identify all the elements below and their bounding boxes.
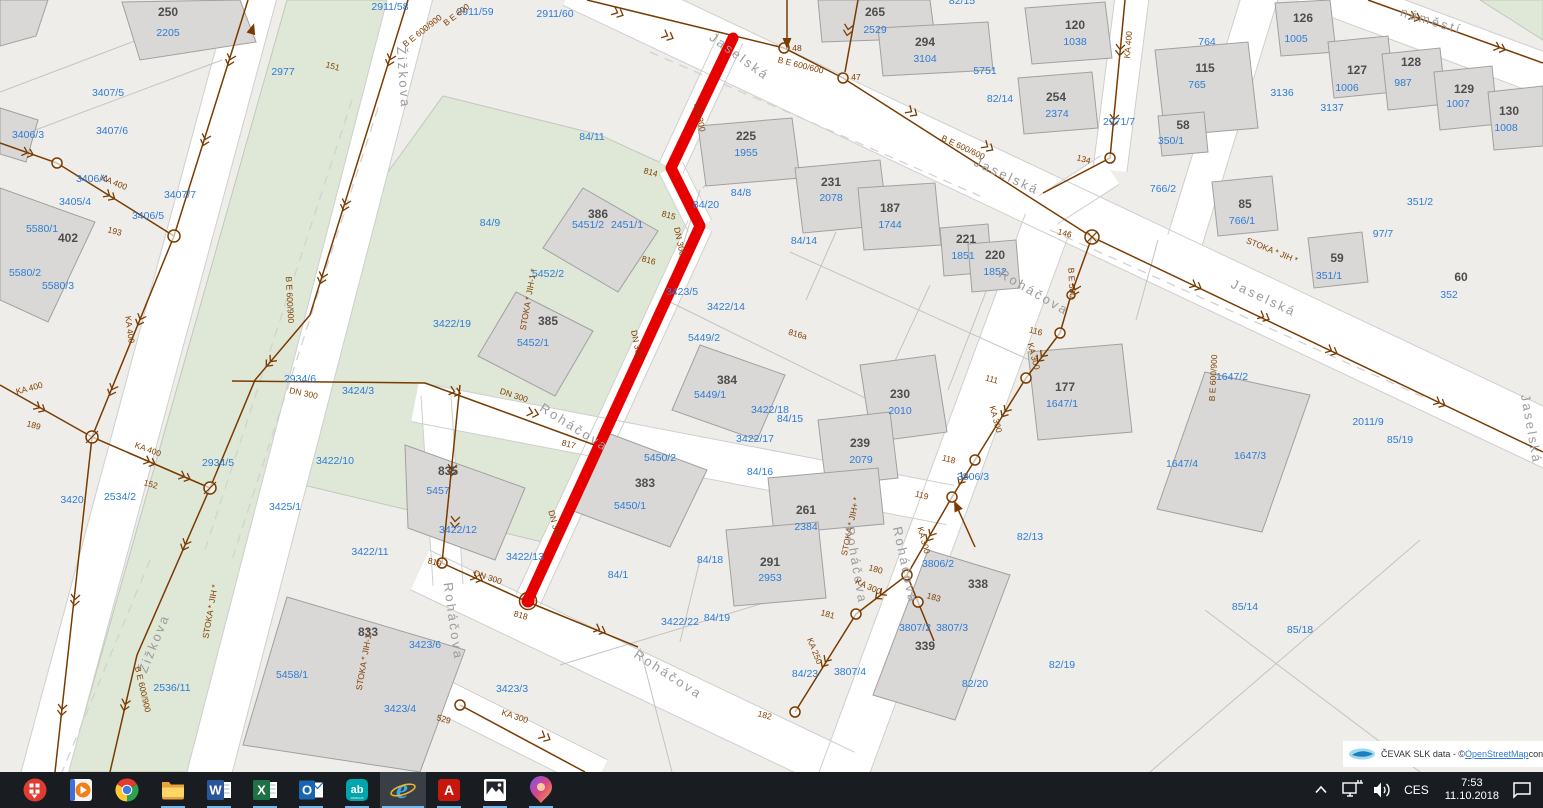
svg-text:239: 239 — [850, 436, 870, 450]
svg-text:1647/2: 1647/2 — [1216, 371, 1248, 383]
svg-text:187: 187 — [880, 201, 900, 215]
svg-text:3423/5: 3423/5 — [666, 286, 698, 298]
svg-text:5449/1: 5449/1 — [694, 389, 726, 401]
svg-text:3425/1: 3425/1 — [269, 501, 301, 513]
svg-text:765: 765 — [1188, 79, 1206, 91]
svg-text:W: W — [209, 783, 222, 798]
volume-icon[interactable] — [1368, 777, 1394, 803]
media-player-icon[interactable] — [58, 772, 104, 808]
svg-text:265: 265 — [865, 5, 885, 19]
svg-text:350/1: 350/1 — [1158, 135, 1184, 147]
svg-text:352: 352 — [1440, 289, 1458, 301]
svg-text:3422/13: 3422/13 — [506, 551, 544, 563]
svg-text:766/2: 766/2 — [1150, 183, 1176, 195]
svg-text:5458/1: 5458/1 — [276, 669, 308, 681]
svg-text:1007: 1007 — [1446, 98, 1470, 110]
svg-text:230: 230 — [890, 387, 910, 401]
svg-text:385: 385 — [538, 314, 558, 328]
tray-expand-icon[interactable] — [1308, 777, 1334, 803]
svg-text:2010: 2010 — [888, 405, 912, 417]
svg-text:5457: 5457 — [426, 485, 450, 497]
svg-text:e: e — [396, 776, 408, 804]
svg-text:5751: 5751 — [973, 65, 997, 77]
svg-text:3424/3: 3424/3 — [342, 385, 374, 397]
svg-text:1647/4: 1647/4 — [1166, 458, 1198, 470]
svg-text:1038: 1038 — [1063, 36, 1087, 48]
svg-text:402: 402 — [58, 231, 78, 245]
attribution-text: ČEVAK SLK data - © — [1381, 749, 1465, 759]
svg-text:231: 231 — [821, 175, 841, 189]
svg-text:3136: 3136 — [1270, 87, 1294, 99]
svg-text:84/19: 84/19 — [704, 612, 730, 624]
svg-text:294: 294 — [915, 35, 935, 49]
svg-text:766/1: 766/1 — [1229, 215, 1255, 227]
svg-text:291: 291 — [760, 555, 780, 569]
acrobat-reader-icon[interactable]: A — [426, 772, 472, 808]
svg-text:3423/3: 3423/3 — [496, 683, 528, 695]
internet-explorer-icon[interactable]: e — [380, 772, 426, 808]
svg-text:339: 339 — [915, 639, 935, 653]
abra-app-icon[interactable]: ababacus — [334, 772, 380, 808]
svg-text:3406/3: 3406/3 — [12, 129, 44, 141]
clock-time: 7:53 — [1445, 777, 1499, 790]
svg-text:3137: 3137 — [1320, 102, 1344, 114]
svg-text:261: 261 — [796, 503, 816, 517]
svg-text:3806/3: 3806/3 — [957, 471, 989, 483]
svg-text:177: 177 — [1055, 380, 1075, 394]
svg-text:85/19: 85/19 — [1387, 434, 1413, 446]
svg-text:3422/14: 3422/14 — [707, 301, 745, 313]
svg-text:1955: 1955 — [734, 147, 758, 159]
svg-text:84/9: 84/9 — [480, 217, 501, 229]
svg-text:3423/4: 3423/4 — [384, 703, 416, 715]
svg-text:2536/11: 2536/11 — [153, 682, 190, 694]
svg-text:B E 500: B E 500 — [1066, 267, 1078, 298]
svg-text:127: 127 — [1347, 63, 1367, 77]
svg-text:82/14: 82/14 — [987, 93, 1013, 105]
svg-text:384: 384 — [717, 373, 737, 387]
svg-text:97/7: 97/7 — [1373, 228, 1394, 240]
svg-text:130: 130 — [1499, 104, 1519, 118]
svg-text:225: 225 — [736, 129, 756, 143]
svg-text:987: 987 — [1394, 77, 1412, 89]
svg-text:85/18: 85/18 — [1287, 624, 1313, 636]
network-icon[interactable] — [1338, 777, 1364, 803]
svg-text:2384: 2384 — [794, 521, 818, 533]
svg-text:250: 250 — [158, 5, 178, 19]
outlook-icon[interactable]: O — [288, 772, 334, 808]
attribution-suffix: contributors. — [1529, 749, 1543, 759]
svg-text:221: 221 — [956, 232, 976, 246]
svg-text:59: 59 — [1330, 251, 1344, 265]
svg-text:X: X — [257, 783, 266, 798]
file-explorer-icon[interactable] — [150, 772, 196, 808]
svg-text:2534/2: 2534/2 — [104, 491, 136, 503]
svg-text:3407/6: 3407/6 — [96, 125, 128, 137]
map-canvas[interactable]: 25022052911/582911/592911/60B E 600/900B… — [0, 0, 1543, 772]
svg-text:254: 254 — [1046, 90, 1066, 104]
svg-text:3807/4: 3807/4 — [834, 666, 866, 678]
svg-text:3407/5: 3407/5 — [92, 87, 124, 99]
svg-text:3807/3: 3807/3 — [936, 622, 968, 634]
openstreetmap-link[interactable]: OpenStreetMap — [1465, 749, 1529, 759]
svg-text:3422/17: 3422/17 — [736, 433, 774, 445]
svg-text:84/14: 84/14 — [791, 235, 817, 247]
svg-text:5450/2: 5450/2 — [644, 452, 676, 464]
svg-text:3422/22: 3422/22 — [661, 616, 699, 628]
svg-text:3405/4: 3405/4 — [59, 196, 91, 208]
svg-text:5580/3: 5580/3 — [42, 280, 74, 292]
svg-text:5580/1: 5580/1 — [26, 223, 58, 235]
cevak-logo — [1347, 747, 1377, 761]
svg-text:2911/58: 2911/58 — [371, 1, 408, 13]
svg-text:2934/6: 2934/6 — [284, 373, 316, 385]
svg-text:120: 120 — [1065, 18, 1085, 32]
svg-text:2953: 2953 — [758, 572, 782, 584]
svg-text:351/1: 351/1 — [1316, 270, 1342, 282]
svg-text:84/11: 84/11 — [579, 131, 605, 143]
svg-text:82/15: 82/15 — [949, 0, 975, 7]
svg-text:5452/1: 5452/1 — [517, 337, 549, 349]
svg-text:84/15: 84/15 — [777, 413, 803, 425]
svg-text:60: 60 — [1454, 270, 1468, 284]
svg-text:47: 47 — [851, 72, 861, 82]
svg-text:2011/9: 2011/9 — [1352, 416, 1383, 428]
svg-text:48: 48 — [792, 43, 802, 53]
svg-text:82/19: 82/19 — [1049, 659, 1075, 671]
svg-text:5451/2: 5451/2 — [572, 219, 604, 231]
svg-text:84/18: 84/18 — [697, 554, 723, 566]
svg-text:115: 115 — [1195, 61, 1215, 75]
svg-text:84/20: 84/20 — [693, 199, 719, 211]
svg-text:2971/7: 2971/7 — [1103, 116, 1135, 128]
svg-text:1008: 1008 — [1494, 122, 1518, 134]
svg-text:84/1: 84/1 — [608, 569, 629, 581]
svg-text:5580/2: 5580/2 — [9, 267, 41, 279]
svg-text:1647/1: 1647/1 — [1046, 398, 1078, 410]
svg-text:2451/1: 2451/1 — [611, 219, 643, 231]
svg-text:3407/7: 3407/7 — [164, 189, 196, 201]
system-tray: CES 7:53 11.10.2018 — [1308, 772, 1543, 808]
svg-text:84/16: 84/16 — [747, 466, 773, 478]
svg-text:3420: 3420 — [60, 494, 84, 506]
svg-text:O: O — [302, 783, 312, 798]
svg-text:2529: 2529 — [863, 24, 887, 36]
svg-text:383: 383 — [635, 476, 655, 490]
language-indicator[interactable]: CES — [1398, 783, 1435, 797]
svg-text:3104: 3104 — [913, 53, 937, 65]
clock-date: 11.10.2018 — [1445, 790, 1499, 803]
svg-text:3423/6: 3423/6 — [409, 639, 441, 651]
svg-text:A: A — [444, 782, 454, 798]
svg-text:126: 126 — [1293, 11, 1313, 25]
svg-text:3422/12: 3422/12 — [439, 524, 477, 536]
svg-text:129: 129 — [1454, 82, 1474, 96]
taskbar-icons: WXOababacuseA — [0, 772, 564, 808]
svg-text:3406/5: 3406/5 — [132, 210, 164, 222]
svg-text:1851: 1851 — [951, 250, 975, 262]
svg-text:764: 764 — [1198, 36, 1216, 48]
svg-text:84/8: 84/8 — [731, 187, 752, 199]
svg-text:2078: 2078 — [819, 192, 843, 204]
svg-text:82/20: 82/20 — [962, 678, 988, 690]
svg-text:5450/1: 5450/1 — [614, 500, 646, 512]
svg-text:abacus: abacus — [351, 795, 364, 800]
svg-text:835: 835 — [438, 464, 458, 478]
svg-text:3422/10: 3422/10 — [316, 455, 354, 467]
svg-text:128: 128 — [1401, 55, 1421, 69]
clock[interactable]: 7:53 11.10.2018 — [1439, 777, 1505, 803]
svg-text:2977: 2977 — [271, 66, 295, 78]
svg-text:58: 58 — [1176, 118, 1190, 132]
desktop: 25022052911/582911/592911/60B E 600/900B… — [0, 0, 1543, 808]
svg-text:1647/3: 1647/3 — [1234, 450, 1266, 462]
svg-text:2934/5: 2934/5 — [202, 457, 234, 469]
svg-text:1005: 1005 — [1284, 33, 1308, 45]
svg-text:3806/2: 3806/2 — [922, 558, 954, 570]
svg-text:3422/19: 3422/19 — [433, 318, 471, 330]
excel-icon[interactable]: X — [242, 772, 288, 808]
svg-text:3807/2: 3807/2 — [899, 622, 931, 634]
svg-text:2911/60: 2911/60 — [536, 8, 573, 20]
svg-text:351/2: 351/2 — [1407, 196, 1433, 208]
chrome-icon[interactable] — [104, 772, 150, 808]
svg-text:2374: 2374 — [1045, 108, 1069, 120]
action-center-icon[interactable] — [1509, 777, 1535, 803]
svg-text:85: 85 — [1238, 197, 1252, 211]
svg-text:3422/11: 3422/11 — [351, 546, 388, 558]
pinned-app-icon[interactable] — [12, 772, 58, 808]
svg-text:1744: 1744 — [878, 219, 902, 231]
svg-text:5449/2: 5449/2 — [688, 332, 720, 344]
maps-pin-icon[interactable] — [518, 772, 564, 808]
photos-icon[interactable] — [472, 772, 518, 808]
svg-text:1006: 1006 — [1335, 82, 1359, 94]
svg-text:82/13: 82/13 — [1017, 531, 1043, 543]
svg-text:2205: 2205 — [156, 27, 180, 39]
svg-text:220: 220 — [985, 248, 1005, 262]
map-attribution: ČEVAK SLK data - © OpenStreetMap contrib… — [1343, 741, 1543, 767]
svg-text:85/14: 85/14 — [1232, 601, 1258, 613]
taskbar: WXOababacuseA — [0, 772, 1543, 808]
word-icon[interactable]: W — [196, 772, 242, 808]
svg-text:84/23: 84/23 — [792, 668, 818, 680]
svg-text:338: 338 — [968, 577, 988, 591]
svg-text:2079: 2079 — [849, 454, 873, 466]
